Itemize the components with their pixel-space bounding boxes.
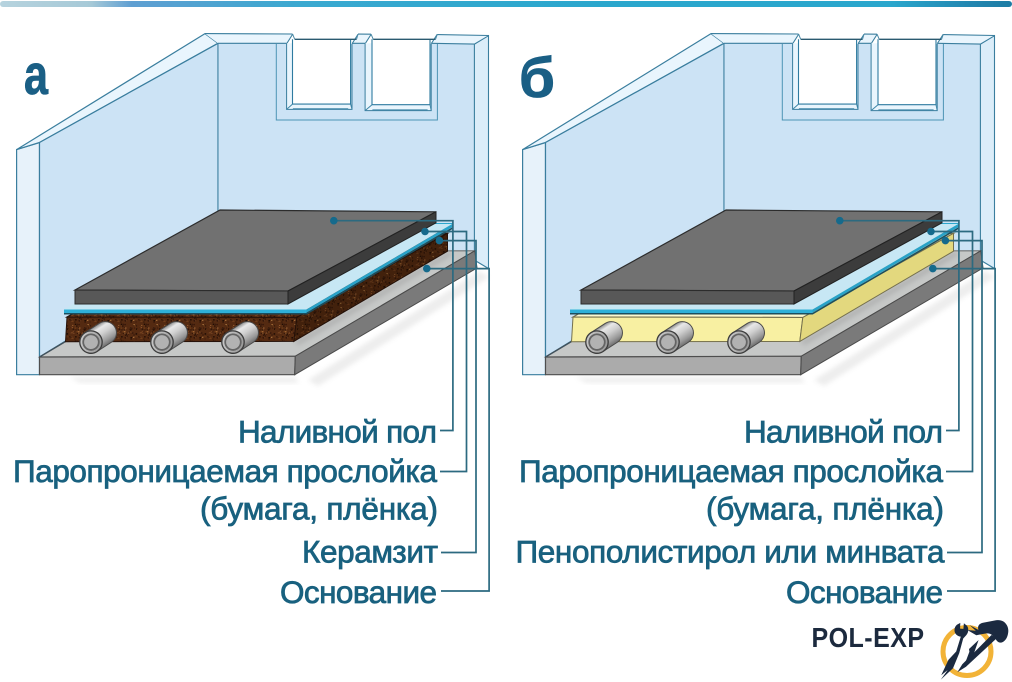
svg-text:Паропроницаемая прослойка: Паропроницаемая прослойка xyxy=(519,453,943,489)
svg-text:Керамзит: Керамзит xyxy=(302,534,438,570)
svg-text:Основание: Основание xyxy=(786,574,943,610)
svg-text:Пенополистирол или минвата: Пенополистирол или минвата xyxy=(516,534,945,570)
svg-text:(бумага, плёнка): (бумага, плёнка) xyxy=(706,491,944,527)
svg-text:Основание: Основание xyxy=(280,574,437,610)
svg-text:б: б xyxy=(519,46,555,110)
svg-text:Паропроницаемая прослойка: Паропроницаемая прослойка xyxy=(13,453,437,489)
svg-text:Наливной пол: Наливной пол xyxy=(744,414,943,450)
svg-text:POL-EXP: POL-EXP xyxy=(812,622,925,653)
svg-text:(бумага, плёнка): (бумага, плёнка) xyxy=(200,491,438,527)
svg-text:Наливной пол: Наливной пол xyxy=(238,414,437,450)
svg-text:а: а xyxy=(24,43,49,107)
